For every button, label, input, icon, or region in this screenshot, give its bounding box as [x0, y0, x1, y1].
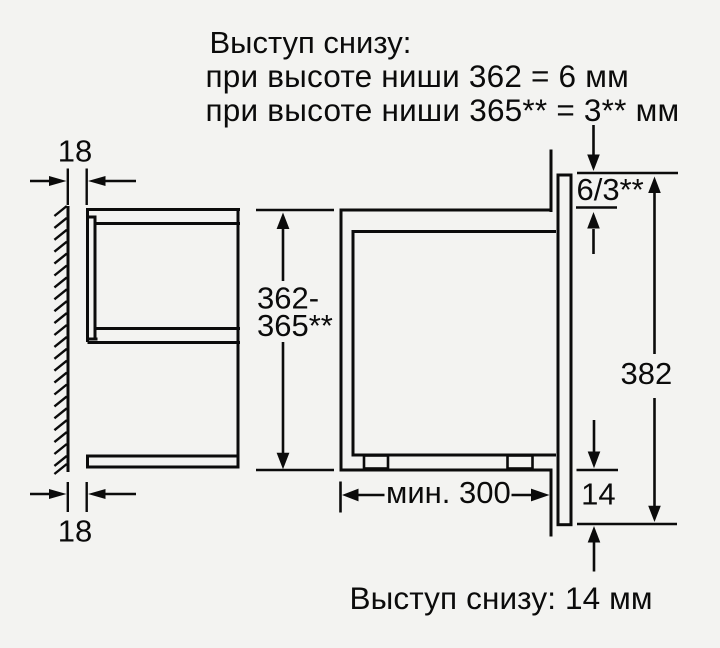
svg-text:18: 18 — [58, 514, 92, 549]
svg-text:мин. 300: мин. 300 — [386, 475, 511, 510]
svg-text:14: 14 — [581, 477, 615, 512]
svg-text:Выступ снизу: 14 мм: Выступ снизу: 14 мм — [350, 580, 653, 616]
svg-text:382: 382 — [621, 356, 673, 391]
svg-text:при высоте ниши 362 = 6 мм: при высоте ниши 362 = 6 мм — [206, 58, 629, 94]
svg-text:при высоте ниши 365** = 3** мм: при высоте ниши 365** = 3** мм — [206, 92, 680, 128]
svg-text:Выступ снизу:: Выступ снизу: — [210, 25, 412, 60]
svg-text:6/3**: 6/3** — [577, 172, 644, 207]
svg-text:18: 18 — [58, 134, 92, 169]
svg-text:365**: 365** — [257, 308, 333, 343]
